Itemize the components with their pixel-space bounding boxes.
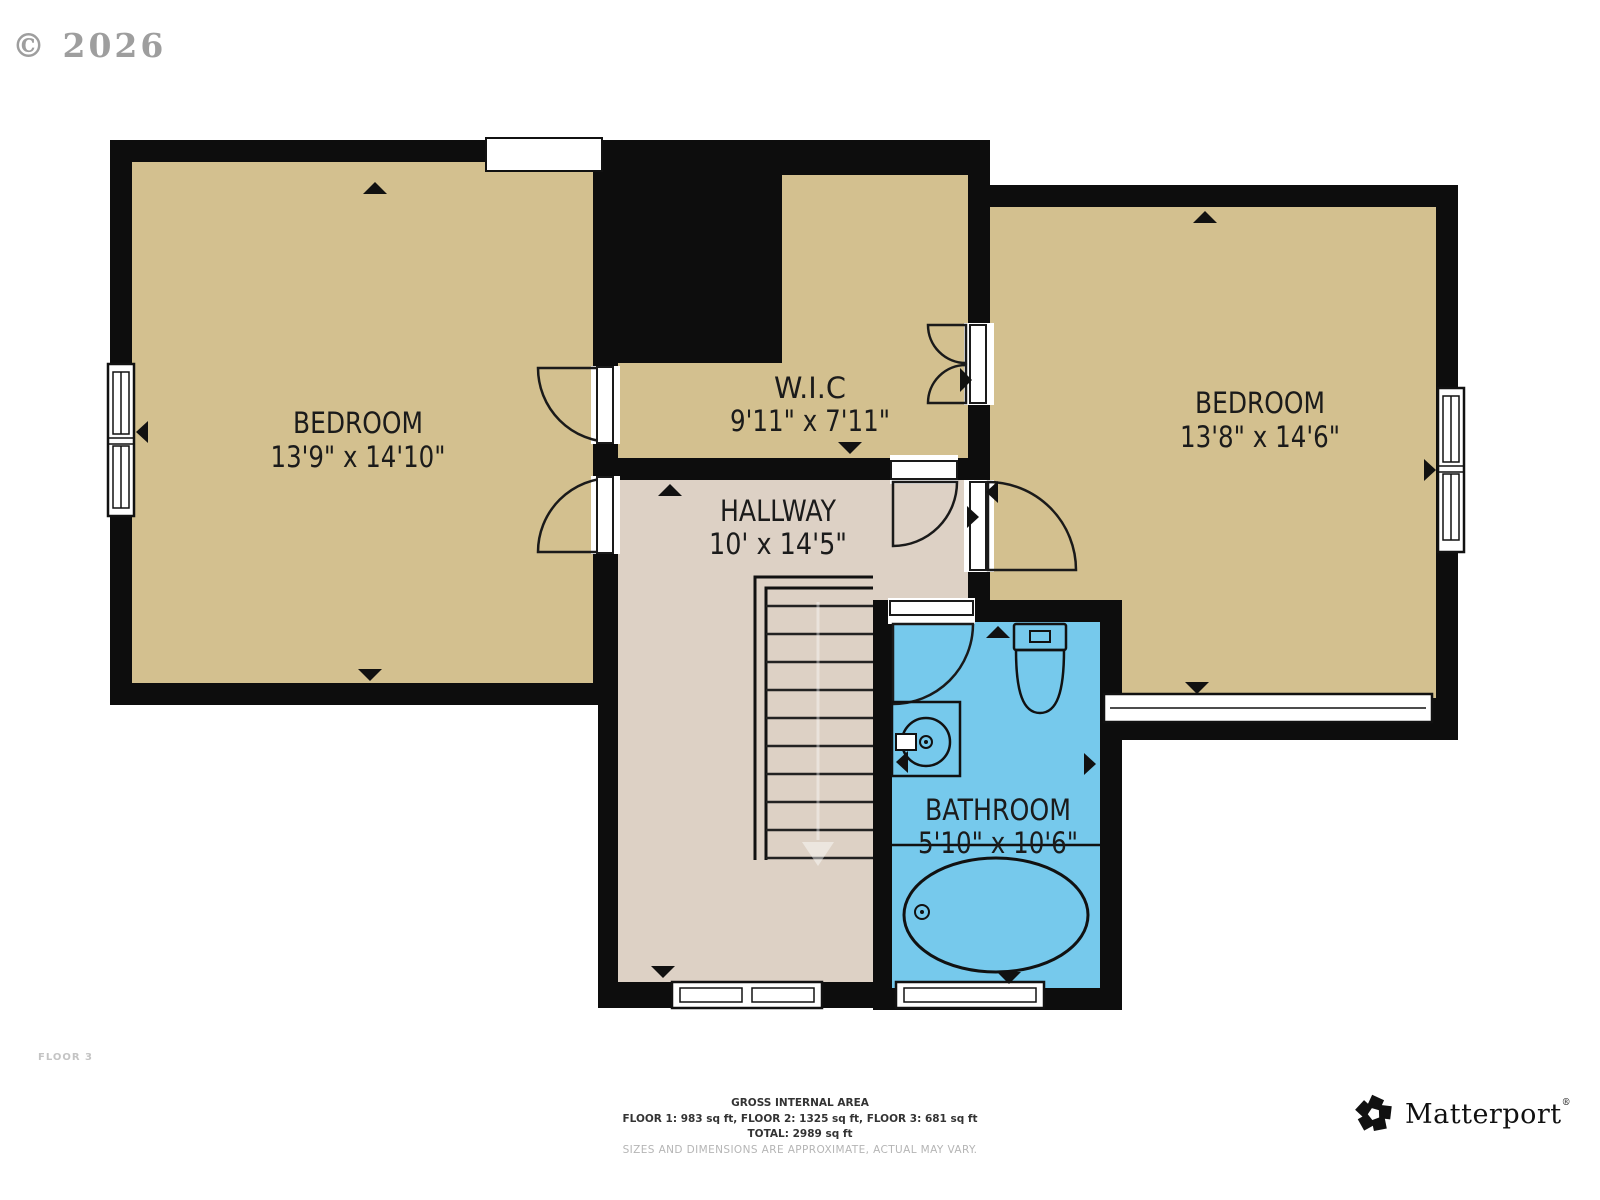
- matterport-wordmark: Matterport®: [1405, 1098, 1571, 1130]
- brand-name: Matterport: [1405, 1099, 1562, 1130]
- window-right-wall: [1438, 388, 1464, 552]
- floorplan-page: © 2026: [0, 0, 1600, 1200]
- room-label: BEDROOM: [1195, 386, 1325, 420]
- room-dimensions: 13'9" x 14'10": [271, 440, 446, 474]
- room-dimensions: 9'11" x 7'11": [730, 404, 890, 438]
- registered-mark: ®: [1562, 1098, 1572, 1108]
- window-top-left-bedroom: [486, 138, 602, 171]
- room-floors: [132, 162, 1436, 988]
- floorplan-canvas: BEDROOM 13'9" x 14'10" W.I.C 9'11" x 7'1…: [0, 0, 1600, 1200]
- room-label: W.I.C: [774, 371, 846, 405]
- window-hallway-bottom: [672, 982, 822, 1008]
- room-label: BEDROOM: [293, 406, 423, 440]
- room-dimensions: 10' x 14'5": [709, 527, 847, 561]
- room-label: BATHROOM: [925, 793, 1071, 827]
- window-bathroom-bottom: [896, 982, 1044, 1008]
- disclaimer-line: SIZES AND DIMENSIONS ARE APPROXIMATE, AC…: [0, 1143, 1600, 1159]
- matterport-branding: Matterport®: [1352, 1092, 1571, 1136]
- matterport-pinwheel-icon: [1352, 1092, 1396, 1136]
- room-dimensions: 13'8" x 14'6": [1180, 420, 1340, 454]
- room-dimensions: 5'10" x 10'6": [918, 826, 1078, 860]
- window-left-wall: [108, 364, 134, 516]
- room-label: HALLWAY: [720, 494, 836, 528]
- floor-label: FLOOR 3: [38, 1052, 93, 1063]
- window-right-bedroom-bottom: [1104, 694, 1432, 722]
